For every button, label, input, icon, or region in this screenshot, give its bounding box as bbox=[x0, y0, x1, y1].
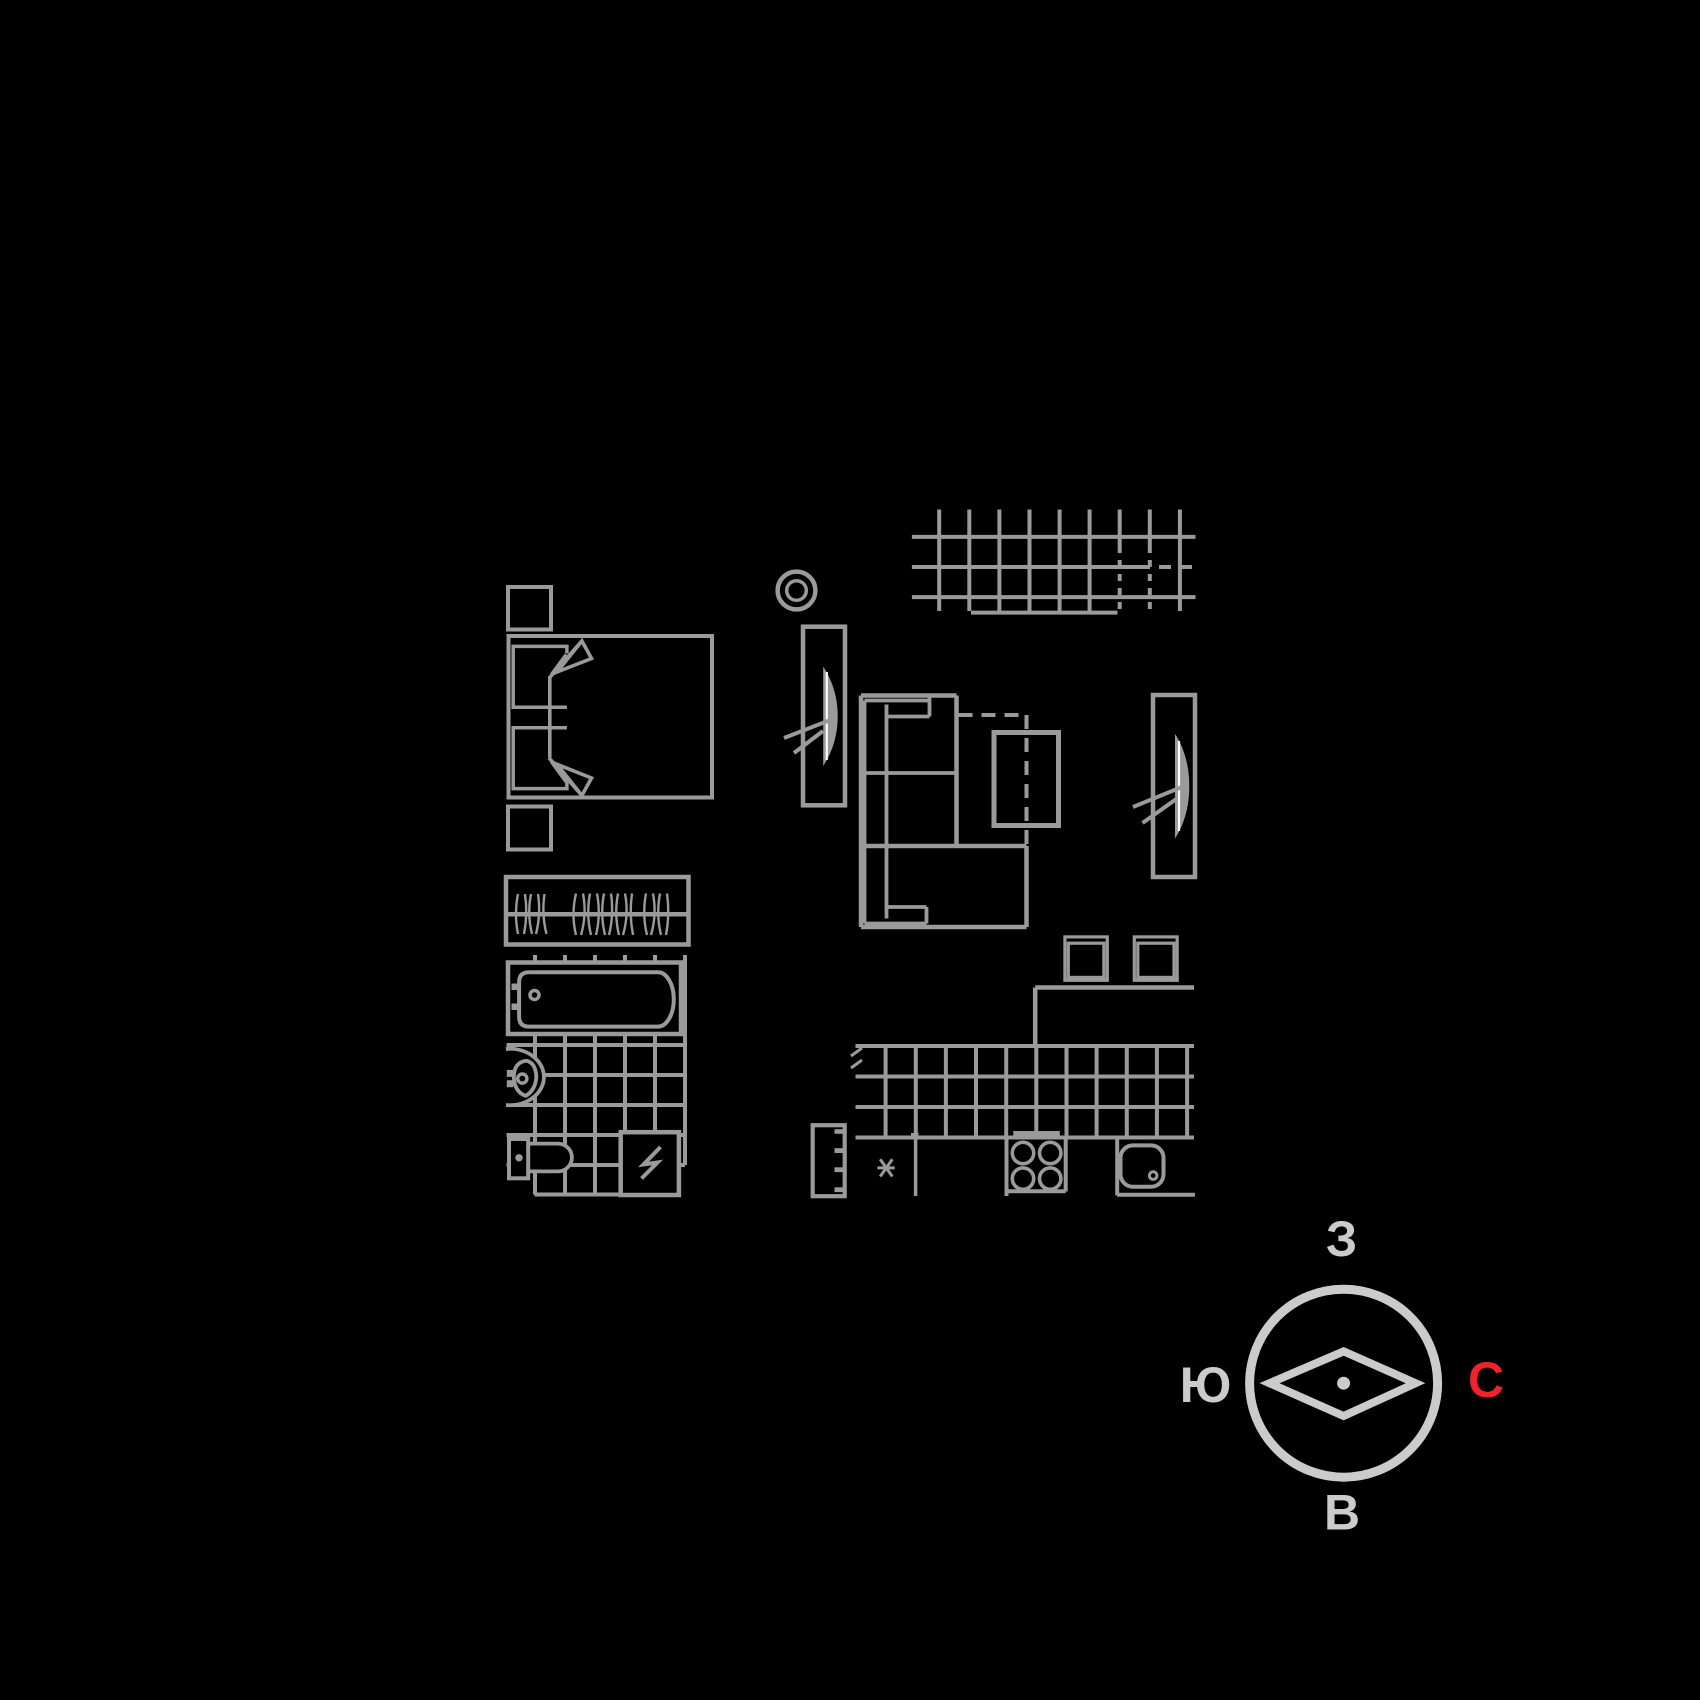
svg-text:В: В bbox=[1324, 1485, 1360, 1541]
svg-text:Ю: Ю bbox=[1180, 1357, 1232, 1413]
svg-text:С: С bbox=[1468, 1352, 1504, 1408]
svg-text:З: З bbox=[1326, 1211, 1357, 1267]
